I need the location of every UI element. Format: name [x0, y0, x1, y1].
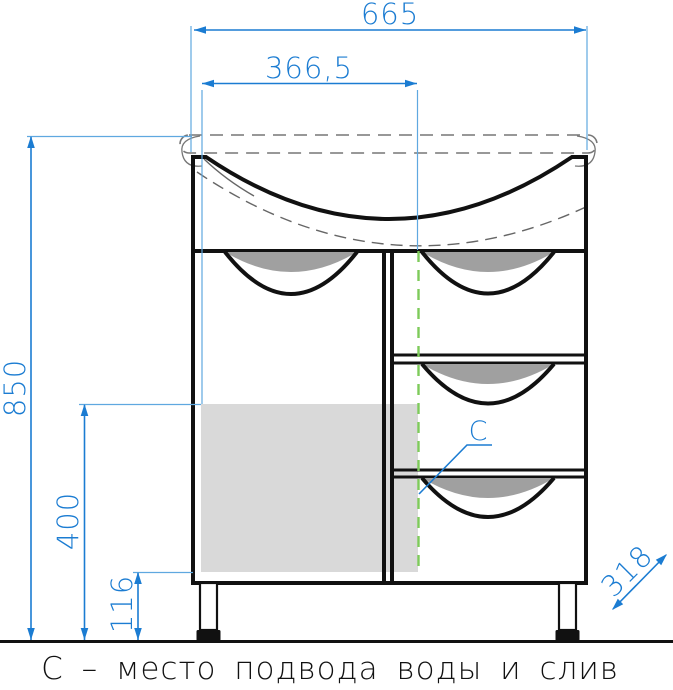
caption: С – место подвода воды и слив — [0, 651, 660, 687]
dim-drain-offset-label: 366,5 — [265, 51, 353, 85]
vanity-technical-drawing: 665 366,5 850 400 — [0, 0, 673, 690]
dim-zone-bottom-offset-label: 116 — [105, 575, 139, 633]
dim-depth-label: 318 — [594, 538, 659, 603]
drain-marker-label: С — [469, 416, 488, 447]
dim-overall-width-label: 665 — [361, 0, 419, 31]
left-leg — [197, 583, 221, 641]
dim-overall-height-label: 850 — [0, 359, 32, 417]
sink-outline — [180, 135, 597, 166]
dim-zone-bottom-offset: 116 — [105, 572, 193, 640]
right-leg — [556, 583, 580, 641]
drawing-canvas: 665 366,5 850 400 — [0, 0, 673, 690]
dim-overall-height: 850 — [0, 136, 192, 640]
dim-zone-height-label: 400 — [51, 492, 85, 550]
dim-overall-width: 665 — [191, 0, 587, 152]
dim-depth: 318 — [594, 538, 667, 610]
